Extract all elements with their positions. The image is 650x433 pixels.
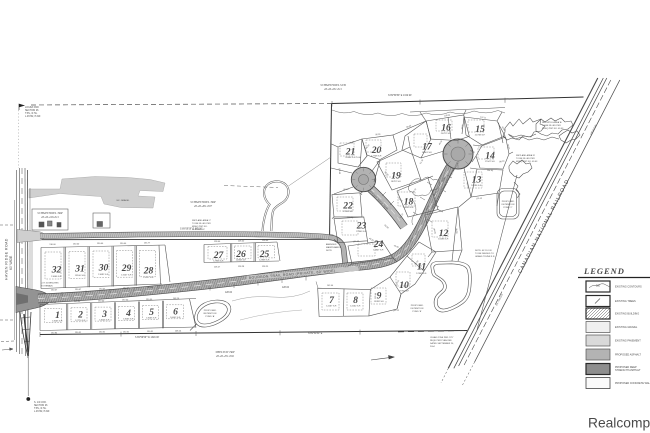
svg-text:130.00: 130.00 bbox=[50, 302, 57, 304]
svg-text:DATED SEPTEMBER 20,: DATED SEPTEMBER 20, bbox=[430, 342, 454, 345]
svg-text:130.00: 130.00 bbox=[122, 300, 129, 302]
svg-text:WETLAND AREA 'C': WETLAND AREA 'C' bbox=[192, 219, 212, 222]
svg-text:62.10: 62.10 bbox=[398, 198, 404, 204]
svg-text:18787 S.F.: 18787 S.F. bbox=[391, 181, 402, 183]
svg-text:12858 S.F.: 12858 S.F. bbox=[236, 260, 247, 262]
svg-text:16598 S.F.: 16598 S.F. bbox=[438, 239, 449, 241]
svg-text:130.00: 130.00 bbox=[97, 243, 104, 245]
svg-text:20-26-226-011: 20-26-226-011 bbox=[41, 215, 59, 219]
svg-text:9: 9 bbox=[377, 291, 382, 302]
svg-text:95.42: 95.42 bbox=[413, 188, 418, 194]
svg-text:PROPOSED: PROPOSED bbox=[204, 310, 217, 312]
svg-text:17760 S.F.: 17760 S.F. bbox=[399, 291, 410, 293]
svg-text:128.00: 128.00 bbox=[214, 241, 221, 243]
svg-text:13065 S.F.: 13065 S.F. bbox=[146, 318, 157, 320]
svg-text:TO BE FILLED PER: TO BE FILLED PER bbox=[516, 158, 535, 160]
svg-text:129.35: 129.35 bbox=[347, 217, 354, 219]
svg-text:100' R.O.W.: 100' R.O.W. bbox=[590, 124, 597, 136]
svg-text:12: 12 bbox=[439, 228, 449, 239]
svg-text:EXISTING PAVEMENT: EXISTING PAVEMENT bbox=[615, 340, 641, 343]
svg-text:T.5N., R.7E.: T.5N., R.7E. bbox=[25, 113, 38, 115]
svg-text:128.00: 128.00 bbox=[262, 240, 269, 242]
svg-text:MDEQ PMT NO. 02-63: MDEQ PMT NO. 02-63 bbox=[542, 128, 564, 130]
svg-text:20: 20 bbox=[371, 145, 382, 156]
svg-text:S 89°59'59" E 660.00': S 89°59'59" E 660.00' bbox=[180, 229, 203, 231]
svg-text:135.80: 135.80 bbox=[147, 287, 154, 289]
svg-text:130.00: 130.00 bbox=[49, 244, 56, 246]
svg-text:PROPOSED CONCRETE WALK: PROPOSED CONCRETE WALK bbox=[615, 382, 650, 385]
svg-text:MDEQ PMT NO. 02-63: MDEQ PMT NO. 02-63 bbox=[516, 161, 538, 163]
svg-text:135.77: 135.77 bbox=[144, 242, 151, 244]
svg-text:130.00: 130.00 bbox=[98, 300, 105, 302]
svg-text:DETENTION: DETENTION bbox=[502, 204, 515, 206]
svg-text:EX. TRACKS: EX. TRACKS bbox=[495, 293, 504, 306]
svg-text:Realcomp: Realcomp bbox=[588, 416, 650, 431]
svg-text:5: 5 bbox=[149, 307, 154, 318]
svg-text:130.07: 130.07 bbox=[123, 288, 130, 290]
svg-text:130.00: 130.00 bbox=[146, 299, 153, 301]
svg-text:104.55: 104.55 bbox=[487, 170, 494, 172]
svg-text:EXISTING TREES: EXISTING TREES bbox=[615, 300, 636, 303]
svg-text:18030 S.F.: 18030 S.F. bbox=[403, 207, 414, 209]
svg-text:REQD PER PLAN REF.: REQD PER PLAN REF. bbox=[430, 339, 452, 342]
svg-text:3: 3 bbox=[101, 309, 107, 320]
svg-text:130.00: 130.00 bbox=[73, 244, 80, 246]
svg-text:128.28: 128.28 bbox=[238, 266, 245, 268]
svg-text:WETLAND AREA 'B': WETLAND AREA 'B' bbox=[516, 154, 536, 157]
svg-text:EXISTING CONTOURS: EXISTING CONTOURS bbox=[615, 286, 642, 289]
svg-text:SECTION 26: SECTION 26 bbox=[34, 405, 48, 407]
svg-text:130.31: 130.31 bbox=[123, 331, 130, 333]
svg-text:17047 S.F.: 17047 S.F. bbox=[485, 161, 496, 163]
svg-text:N 89°59'59" E 1319.90': N 89°59'59" E 1319.90' bbox=[388, 95, 412, 97]
svg-text:130.07: 130.07 bbox=[75, 289, 82, 291]
svg-text:POND 'A': POND 'A' bbox=[205, 315, 215, 318]
svg-text:45.00: 45.00 bbox=[393, 245, 399, 249]
svg-text:14162 S.F.: 14162 S.F. bbox=[350, 306, 361, 308]
svg-text:16: 16 bbox=[441, 123, 451, 134]
svg-text:148.16: 148.16 bbox=[173, 298, 180, 300]
svg-text:CLEAR ZONE PER CITY: CLEAR ZONE PER CITY bbox=[430, 336, 454, 339]
svg-text:23: 23 bbox=[356, 221, 367, 232]
svg-text:104.00: 104.00 bbox=[432, 228, 435, 235]
svg-text:88.00: 88.00 bbox=[499, 160, 505, 163]
svg-text:POND 'B': POND 'B' bbox=[412, 311, 422, 313]
svg-text:12858 S.F.: 12858 S.F. bbox=[259, 260, 270, 262]
svg-text:AMENDED: AMENDED bbox=[326, 243, 337, 246]
svg-text:128.25: 128.25 bbox=[262, 266, 269, 268]
svg-text:13100 S.F.: 13100 S.F. bbox=[75, 275, 86, 277]
svg-text:48.00: 48.00 bbox=[439, 140, 444, 146]
svg-text:S. 1/4 COR.: S. 1/4 COR. bbox=[34, 402, 47, 404]
svg-text:148.14: 148.14 bbox=[175, 330, 182, 332]
svg-text:13: 13 bbox=[472, 175, 482, 186]
svg-text:18661 S.F.: 18661 S.F. bbox=[422, 152, 433, 154]
svg-text:L.46732, P.319: L.46732, P.319 bbox=[34, 411, 50, 413]
svg-text:128.00: 128.00 bbox=[282, 287, 290, 289]
svg-text:102.00: 102.00 bbox=[327, 285, 334, 287]
svg-text:131.00: 131.00 bbox=[353, 241, 360, 243]
svg-text:2: 2 bbox=[77, 310, 83, 321]
svg-text:99.10: 99.10 bbox=[466, 182, 469, 188]
svg-text:32: 32 bbox=[51, 265, 62, 276]
svg-text:LEGEND: LEGEND bbox=[583, 266, 625, 276]
svg-text:13092 S.F.: 13092 S.F. bbox=[98, 274, 109, 276]
svg-text:PROPOSED: PROPOSED bbox=[502, 201, 515, 203]
svg-text:128.00: 128.00 bbox=[338, 168, 340, 175]
svg-text:REG WTLD AREA 'A': REG WTLD AREA 'A' bbox=[542, 121, 562, 124]
svg-text:13127 S.F.: 13127 S.F. bbox=[143, 277, 154, 279]
svg-text:128.00: 128.00 bbox=[238, 240, 245, 242]
svg-text:128.27: 128.27 bbox=[214, 267, 221, 269]
svg-text:19: 19 bbox=[391, 171, 401, 182]
svg-text:EX. GRAVEL: EX. GRAVEL bbox=[117, 199, 131, 202]
svg-text:TO BE DEEDED TO: TO BE DEEDED TO bbox=[475, 253, 494, 255]
svg-text:130.31: 130.31 bbox=[147, 331, 154, 333]
svg-text:15392 S.F.: 15392 S.F. bbox=[374, 301, 385, 303]
svg-text:L.46732, P.319: L.46732, P.319 bbox=[25, 116, 41, 118]
svg-text:6: 6 bbox=[173, 307, 178, 318]
svg-text:S 89°59'59" W 1320.00': S 89°59'59" W 1320.00' bbox=[135, 337, 160, 339]
svg-text:8: 8 bbox=[353, 295, 358, 306]
svg-text:20797 S.F.: 20797 S.F. bbox=[441, 133, 452, 135]
svg-text:15: 15 bbox=[475, 124, 485, 135]
svg-text:128.00: 128.00 bbox=[225, 292, 233, 294]
svg-text:PROPOSED: PROPOSED bbox=[411, 305, 424, 307]
svg-text:120.00: 120.00 bbox=[476, 198, 483, 200]
svg-text:TO REMAIN: TO REMAIN bbox=[41, 285, 53, 288]
svg-text:11: 11 bbox=[417, 262, 426, 273]
svg-text:30: 30 bbox=[98, 263, 109, 274]
svg-text:50.00: 50.00 bbox=[383, 225, 389, 230]
svg-text:14: 14 bbox=[485, 151, 495, 162]
svg-text:NOTE: 66' R.O.W.: NOTE: 66' R.O.W. bbox=[475, 250, 492, 252]
svg-text:130.84: 130.84 bbox=[51, 333, 58, 335]
svg-text:28: 28 bbox=[143, 266, 154, 277]
svg-text:MAINTENANCE: MAINTENANCE bbox=[326, 246, 342, 249]
svg-text:60.10: 60.10 bbox=[343, 189, 349, 191]
svg-text:EXISTING BUILDING: EXISTING BUILDING bbox=[615, 313, 639, 316]
svg-text:NOTE: NOTE bbox=[326, 250, 332, 252]
svg-text:N 89°59'59" E: N 89°59'59" E bbox=[308, 333, 323, 335]
svg-text:130.31: 130.31 bbox=[99, 332, 106, 334]
svg-text:12949 S.F.: 12949 S.F. bbox=[416, 273, 427, 275]
svg-text:130.00: 130.00 bbox=[74, 301, 81, 303]
svg-text:T.5N., R.7E.: T.5N., R.7E. bbox=[34, 408, 47, 410]
svg-text:90.00: 90.00 bbox=[375, 134, 381, 137]
svg-text:EXISTING GRAVEL: EXISTING GRAVEL bbox=[615, 326, 638, 329]
svg-text:20406 S.F.: 20406 S.F. bbox=[345, 157, 356, 159]
svg-text:17592 S.F.: 17592 S.F. bbox=[343, 211, 354, 213]
svg-text:130.31: 130.31 bbox=[75, 332, 82, 334]
svg-text:RETENTION: RETENTION bbox=[204, 313, 217, 315]
svg-text:130.00: 130.00 bbox=[120, 243, 127, 245]
svg-text:LOT 32 BENCHES: LOT 32 BENCHES bbox=[41, 283, 59, 285]
svg-text:75.00: 75.00 bbox=[355, 157, 361, 159]
svg-text:STRENGTH ASPHALT: STRENGTH ASPHALT bbox=[615, 369, 641, 372]
svg-text:GRAND TRUNK R.R.: GRAND TRUNK R.R. bbox=[475, 255, 495, 258]
svg-text:10: 10 bbox=[399, 280, 409, 291]
svg-text:13107 S.F.: 13107 S.F. bbox=[121, 275, 132, 277]
svg-text:17708 S.F.: 17708 S.F. bbox=[371, 156, 382, 158]
svg-text:36.00: 36.00 bbox=[366, 144, 371, 150]
svg-text:13066 S.F.: 13066 S.F. bbox=[51, 276, 62, 278]
svg-text:LOC/EX FND: LOC/EX FND bbox=[25, 107, 39, 109]
svg-text:POND 'C': POND 'C' bbox=[503, 207, 513, 209]
svg-text:1: 1 bbox=[55, 310, 60, 321]
svg-text:25: 25 bbox=[259, 249, 270, 260]
svg-text:140.10: 140.10 bbox=[393, 310, 400, 312]
svg-text:2004: 2004 bbox=[430, 346, 435, 348]
svg-text:20-26-451-002: 20-26-451-002 bbox=[216, 354, 234, 358]
svg-text:31: 31 bbox=[74, 264, 85, 275]
svg-text:TO BE FILLED PER: TO BE FILLED PER bbox=[542, 125, 561, 127]
svg-text:21738 S.F.: 21738 S.F. bbox=[475, 135, 486, 137]
svg-text:16296 S.F.: 16296 S.F. bbox=[471, 185, 482, 187]
svg-text:130.07: 130.07 bbox=[51, 290, 58, 292]
svg-text:52.30: 52.30 bbox=[420, 159, 425, 165]
svg-text:20-26-401-007: 20-26-401-007 bbox=[194, 204, 212, 208]
svg-text:SECTION 26: SECTION 26 bbox=[25, 110, 39, 112]
svg-text:60' WIDE: 60' WIDE bbox=[9, 255, 13, 270]
svg-text:22: 22 bbox=[342, 201, 353, 212]
svg-text:TO BE FILLED PER: TO BE FILLED PER bbox=[192, 223, 211, 225]
svg-text:29: 29 bbox=[121, 263, 132, 274]
svg-text:24: 24 bbox=[373, 239, 384, 250]
svg-text:4: 4 bbox=[125, 308, 131, 319]
svg-text:12858 S.F.: 12858 S.F. bbox=[213, 261, 224, 263]
svg-text:DETENTION: DETENTION bbox=[411, 308, 424, 310]
svg-text:20-26-201-011: 20-26-201-011 bbox=[324, 87, 342, 91]
svg-text:7: 7 bbox=[329, 295, 335, 306]
svg-text:900: 900 bbox=[596, 285, 601, 288]
svg-text:130.07: 130.07 bbox=[99, 288, 106, 290]
svg-text:27: 27 bbox=[213, 250, 225, 261]
svg-text:14167 S.F.: 14167 S.F. bbox=[326, 306, 337, 308]
svg-text:PROPOSED ASPHALT: PROPOSED ASPHALT bbox=[615, 354, 641, 357]
svg-text:HAVEN RIDGE ROAD: HAVEN RIDGE ROAD bbox=[5, 238, 9, 280]
